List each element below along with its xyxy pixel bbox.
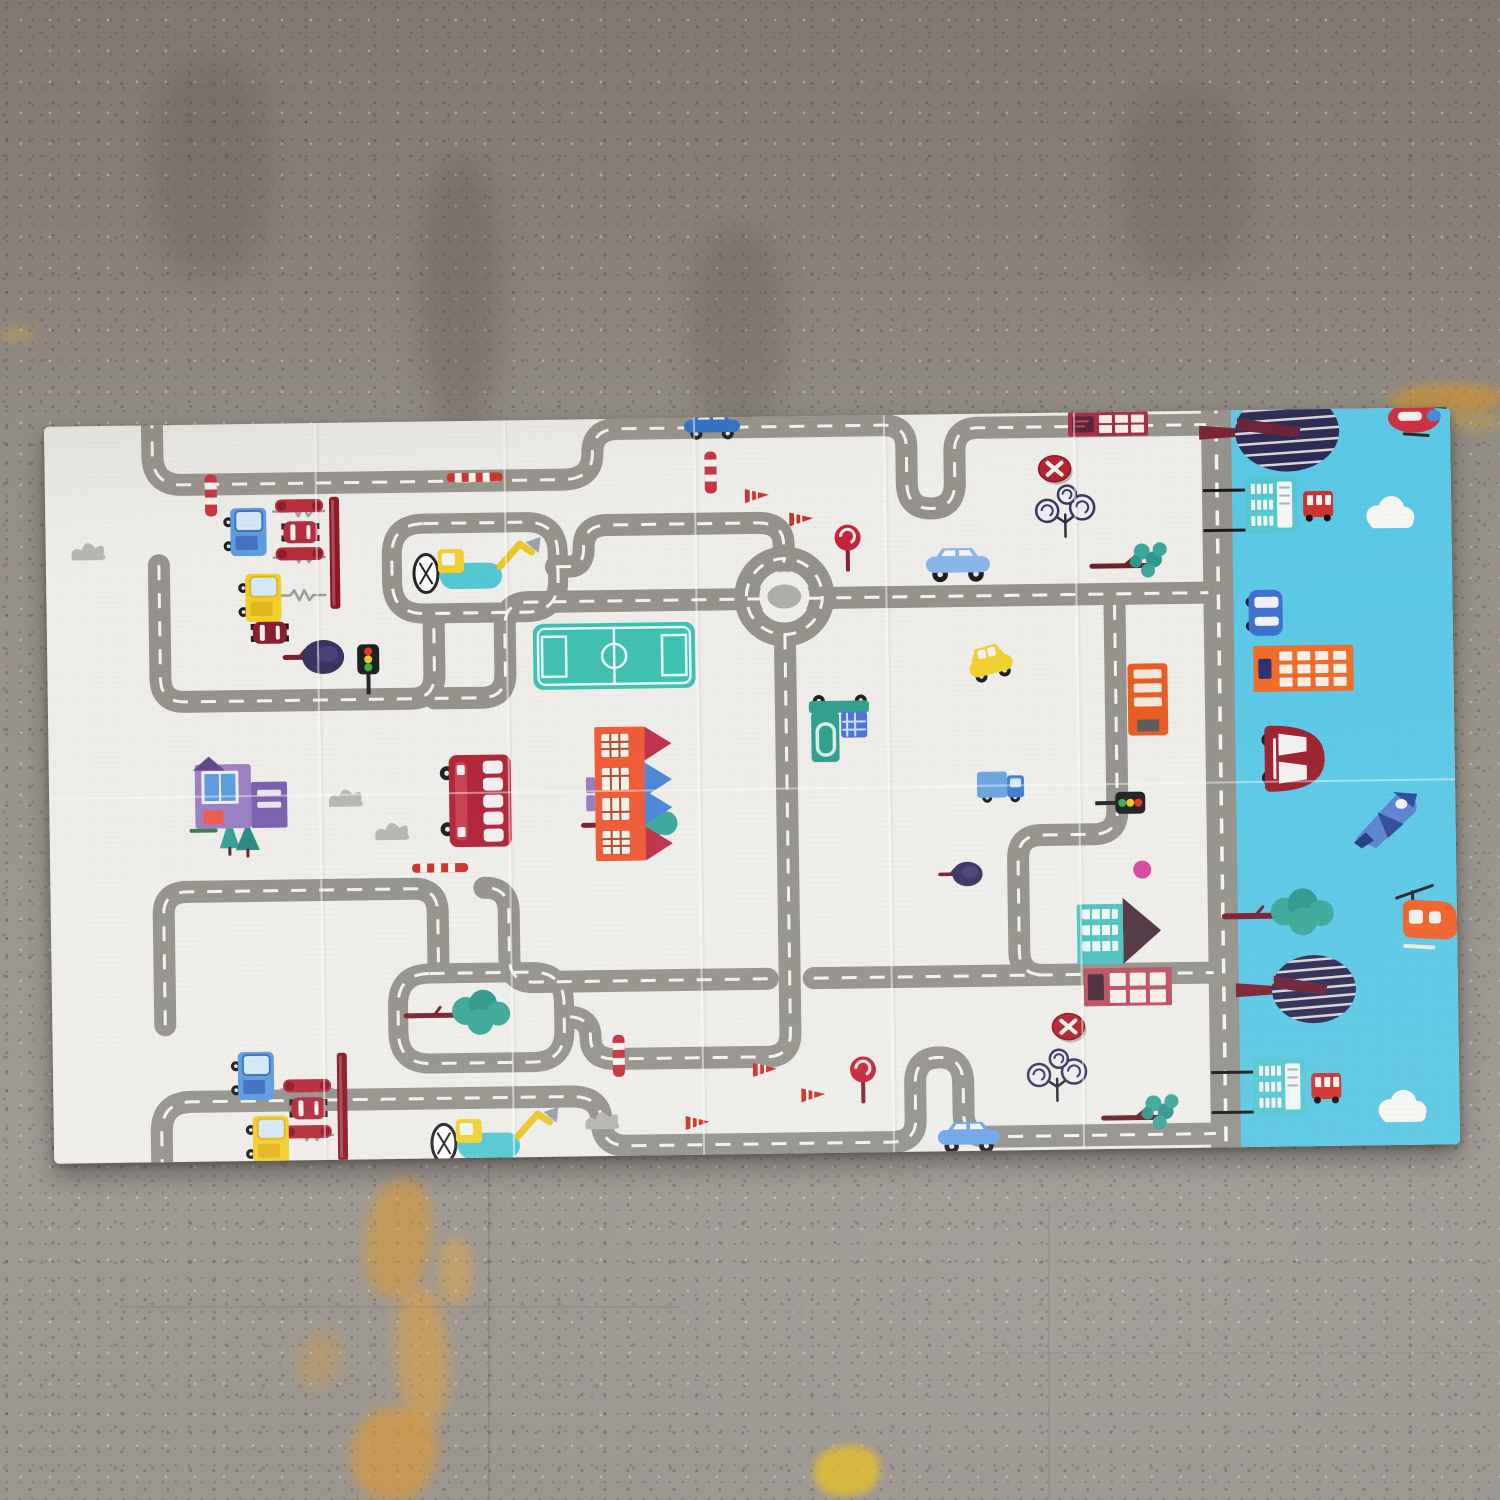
floor-tile-groove xyxy=(488,1162,490,1500)
floor-tile-groove xyxy=(120,1306,680,1308)
floor-shade-streak xyxy=(150,60,270,280)
mat-artwork xyxy=(44,407,1460,1164)
mat-lighting xyxy=(44,407,1460,1164)
floor-shade-streak xyxy=(690,230,785,430)
floor-shade-streak xyxy=(420,160,500,430)
floor-paint-stain xyxy=(358,1174,438,1302)
floor-paint-stain xyxy=(438,1238,472,1304)
floor-paint-stain xyxy=(1448,414,1500,430)
floor-paint-stain xyxy=(0,326,34,342)
floor-paint-stain xyxy=(812,1443,883,1500)
photo-of-play-mat-on-floor xyxy=(0,0,1500,1500)
floor-paint-stain xyxy=(291,1325,349,1395)
play-mat xyxy=(44,407,1460,1164)
floor-tile-groove xyxy=(980,1352,1500,1354)
floor-shade-streak xyxy=(1120,90,1250,280)
